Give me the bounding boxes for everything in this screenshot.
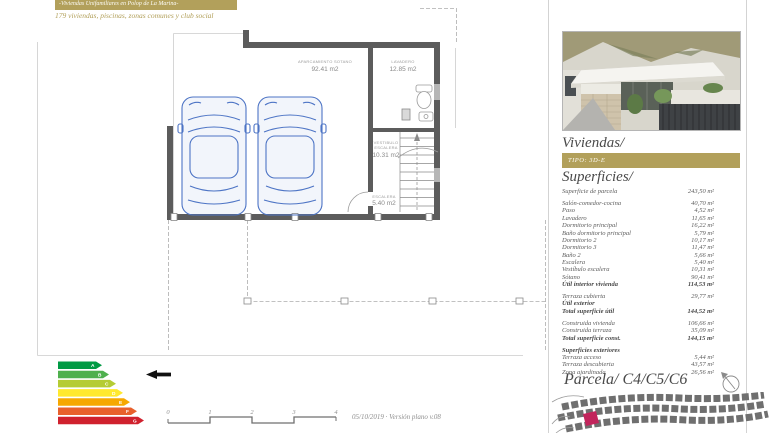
surface-row: Dormitorio 311,47 m² xyxy=(562,244,714,251)
surface-row: Sótano90,41 m² xyxy=(562,274,714,281)
surface-row: Salón-comedor-cocina40,70 m² xyxy=(562,200,714,207)
surface-row: Terraza acceso5,44 m² xyxy=(562,354,714,361)
surface-row-total: Total superficie útil144,52 m² xyxy=(562,308,714,315)
sanitary-fixtures xyxy=(416,85,433,121)
surface-row: Vestíbulo escalera10,31 m² xyxy=(562,266,714,273)
surface-row: Construida vivienda106,66 m² xyxy=(562,320,714,327)
energy-grade-d: D xyxy=(112,391,116,397)
stair-direction-arrow xyxy=(414,133,420,141)
house-render-art xyxy=(563,32,740,130)
parked-cars xyxy=(178,97,326,215)
tipo-badge-text: TIPO: 3D-E xyxy=(562,153,740,168)
superficies-heading: Superficies/ xyxy=(562,169,633,186)
room-label-vestibulo: VESTIBULO ESCALERA xyxy=(372,140,400,150)
viviendas-heading: Viviendas/ xyxy=(562,135,624,152)
room-label-escalera: ESCALERA xyxy=(366,194,402,199)
drawing-sheet: -Viviendas Unifamiliares en Polop de La … xyxy=(0,0,770,433)
energy-grade-f: F xyxy=(126,409,129,415)
energy-grade-a: A xyxy=(91,363,95,369)
staircase xyxy=(398,132,438,212)
graphic-scale-bar: 0 1 2 3 4 xyxy=(160,406,360,430)
surface-row: Lavadero11,65 m² xyxy=(562,215,714,222)
tipo-badge-bar: TIPO: 3D-E xyxy=(562,153,740,168)
scale-tick-3: 3 xyxy=(291,409,296,416)
energy-grade-g: G xyxy=(133,418,137,424)
plan-version-note: 05/10/2019 · Versión plano v.08 xyxy=(352,413,441,421)
surface-row: Terraza descubierta43,57 m² xyxy=(562,361,714,368)
surface-row-parcela: Superficie de parcela 243,50 m² xyxy=(562,188,714,195)
room-area-garage: 92.41 m2 xyxy=(265,66,385,73)
scale-tick-4: 4 xyxy=(334,409,338,416)
room-area-lavadero: 12.85 m2 xyxy=(373,66,433,73)
sidebar-divider-line xyxy=(548,0,549,433)
site-plan-map xyxy=(550,392,770,433)
surface-row: Baño dormitorio principal5,79 m² xyxy=(562,230,714,237)
terrace-columns xyxy=(244,298,523,304)
surface-section-header: Superficies exteriores xyxy=(562,347,714,354)
parcela-heading: Parcela/ C4/C5/C6 xyxy=(564,371,687,389)
surface-row-total: Útil interior vivienda114,53 m² xyxy=(562,281,714,288)
energy-grade-b: B xyxy=(98,372,102,378)
surface-row: Escalera5,40 m² xyxy=(562,259,714,266)
surface-row: Dormitorio 210,17 m² xyxy=(562,237,714,244)
energy-grade-c: C xyxy=(105,382,109,388)
scale-tick-1: 1 xyxy=(208,409,211,416)
surfaces-table: Superficie de parcela 243,50 m² Salón-co… xyxy=(562,188,714,376)
surface-row: Paso4,52 m² xyxy=(562,207,714,214)
surface-row-total: Total superficie const.144,15 m² xyxy=(562,335,714,342)
surface-row: Baño 25,66 m² xyxy=(562,252,714,259)
house-render-photo xyxy=(562,31,741,131)
surface-row: Dormitorio principal16,22 m² xyxy=(562,222,714,229)
surface-row-total: Útil exterior xyxy=(562,300,714,307)
room-label-garage: APARCAMIENTO SOTANO xyxy=(265,59,385,64)
energy-pointer-arrow xyxy=(146,370,171,379)
page-right-border xyxy=(746,0,747,433)
room-area-vestibulo: 10.31 m2 xyxy=(368,152,404,159)
energy-efficiency-label: A B C D E F G xyxy=(58,361,183,427)
scale-tick-2: 2 xyxy=(250,409,254,416)
room-label-lavadero: LAVADERO xyxy=(373,59,433,64)
room-area-escalera: 5.40 m2 xyxy=(364,200,404,207)
garage-pillar xyxy=(402,109,410,120)
surface-row: Construida terraza35,09 m² xyxy=(562,327,714,334)
